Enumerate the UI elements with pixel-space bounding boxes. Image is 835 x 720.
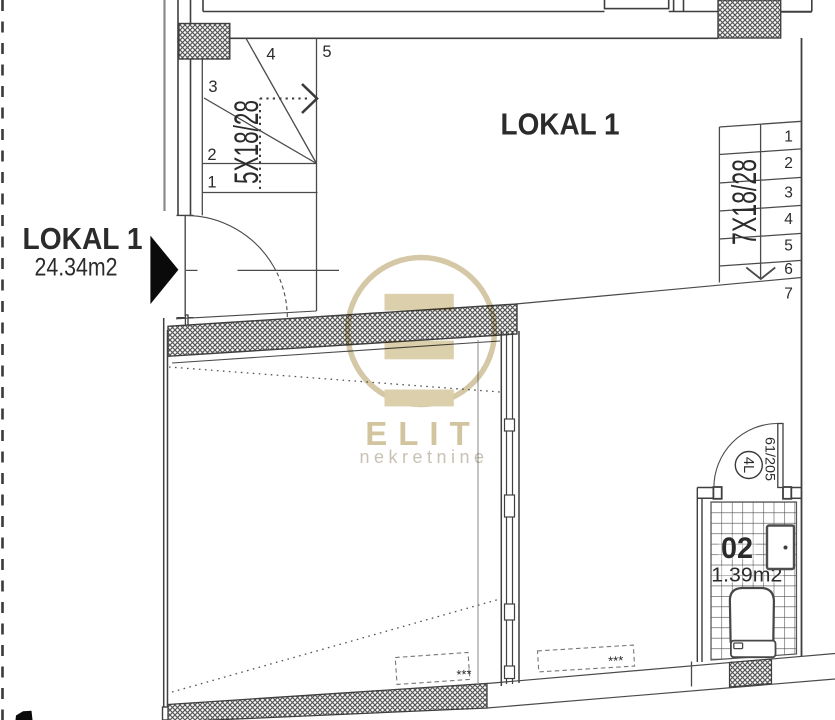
svg-text:LOKAL 1: LOKAL 1 <box>23 221 143 256</box>
svg-text:1: 1 <box>784 129 793 146</box>
svg-text:4: 4 <box>784 211 793 228</box>
svg-text:2: 2 <box>784 155 793 172</box>
svg-text:3: 3 <box>784 185 793 202</box>
svg-text:2: 2 <box>207 146 216 164</box>
svg-text:***: *** <box>456 666 472 682</box>
svg-text:02: 02 <box>721 532 753 565</box>
svg-text:5X18/28: 5X18/28 <box>228 100 266 184</box>
svg-text:24.34m2: 24.34m2 <box>35 254 118 282</box>
svg-text:7: 7 <box>784 286 793 303</box>
svg-text:LOKAL 1: LOKAL 1 <box>501 107 620 142</box>
svg-text:4L: 4L <box>740 457 756 473</box>
svg-text:6: 6 <box>784 261 793 278</box>
svg-text:1: 1 <box>207 174 216 192</box>
svg-text:3: 3 <box>208 78 217 96</box>
svg-text:nekretnine: nekretnine <box>359 447 488 467</box>
svg-text:4: 4 <box>266 46 275 64</box>
svg-text:5: 5 <box>784 238 793 255</box>
svg-text:7X18/28: 7X18/28 <box>726 159 764 245</box>
svg-text:5: 5 <box>322 43 331 61</box>
svg-text:***: *** <box>608 653 624 669</box>
svg-text:61/205: 61/205 <box>763 437 778 481</box>
